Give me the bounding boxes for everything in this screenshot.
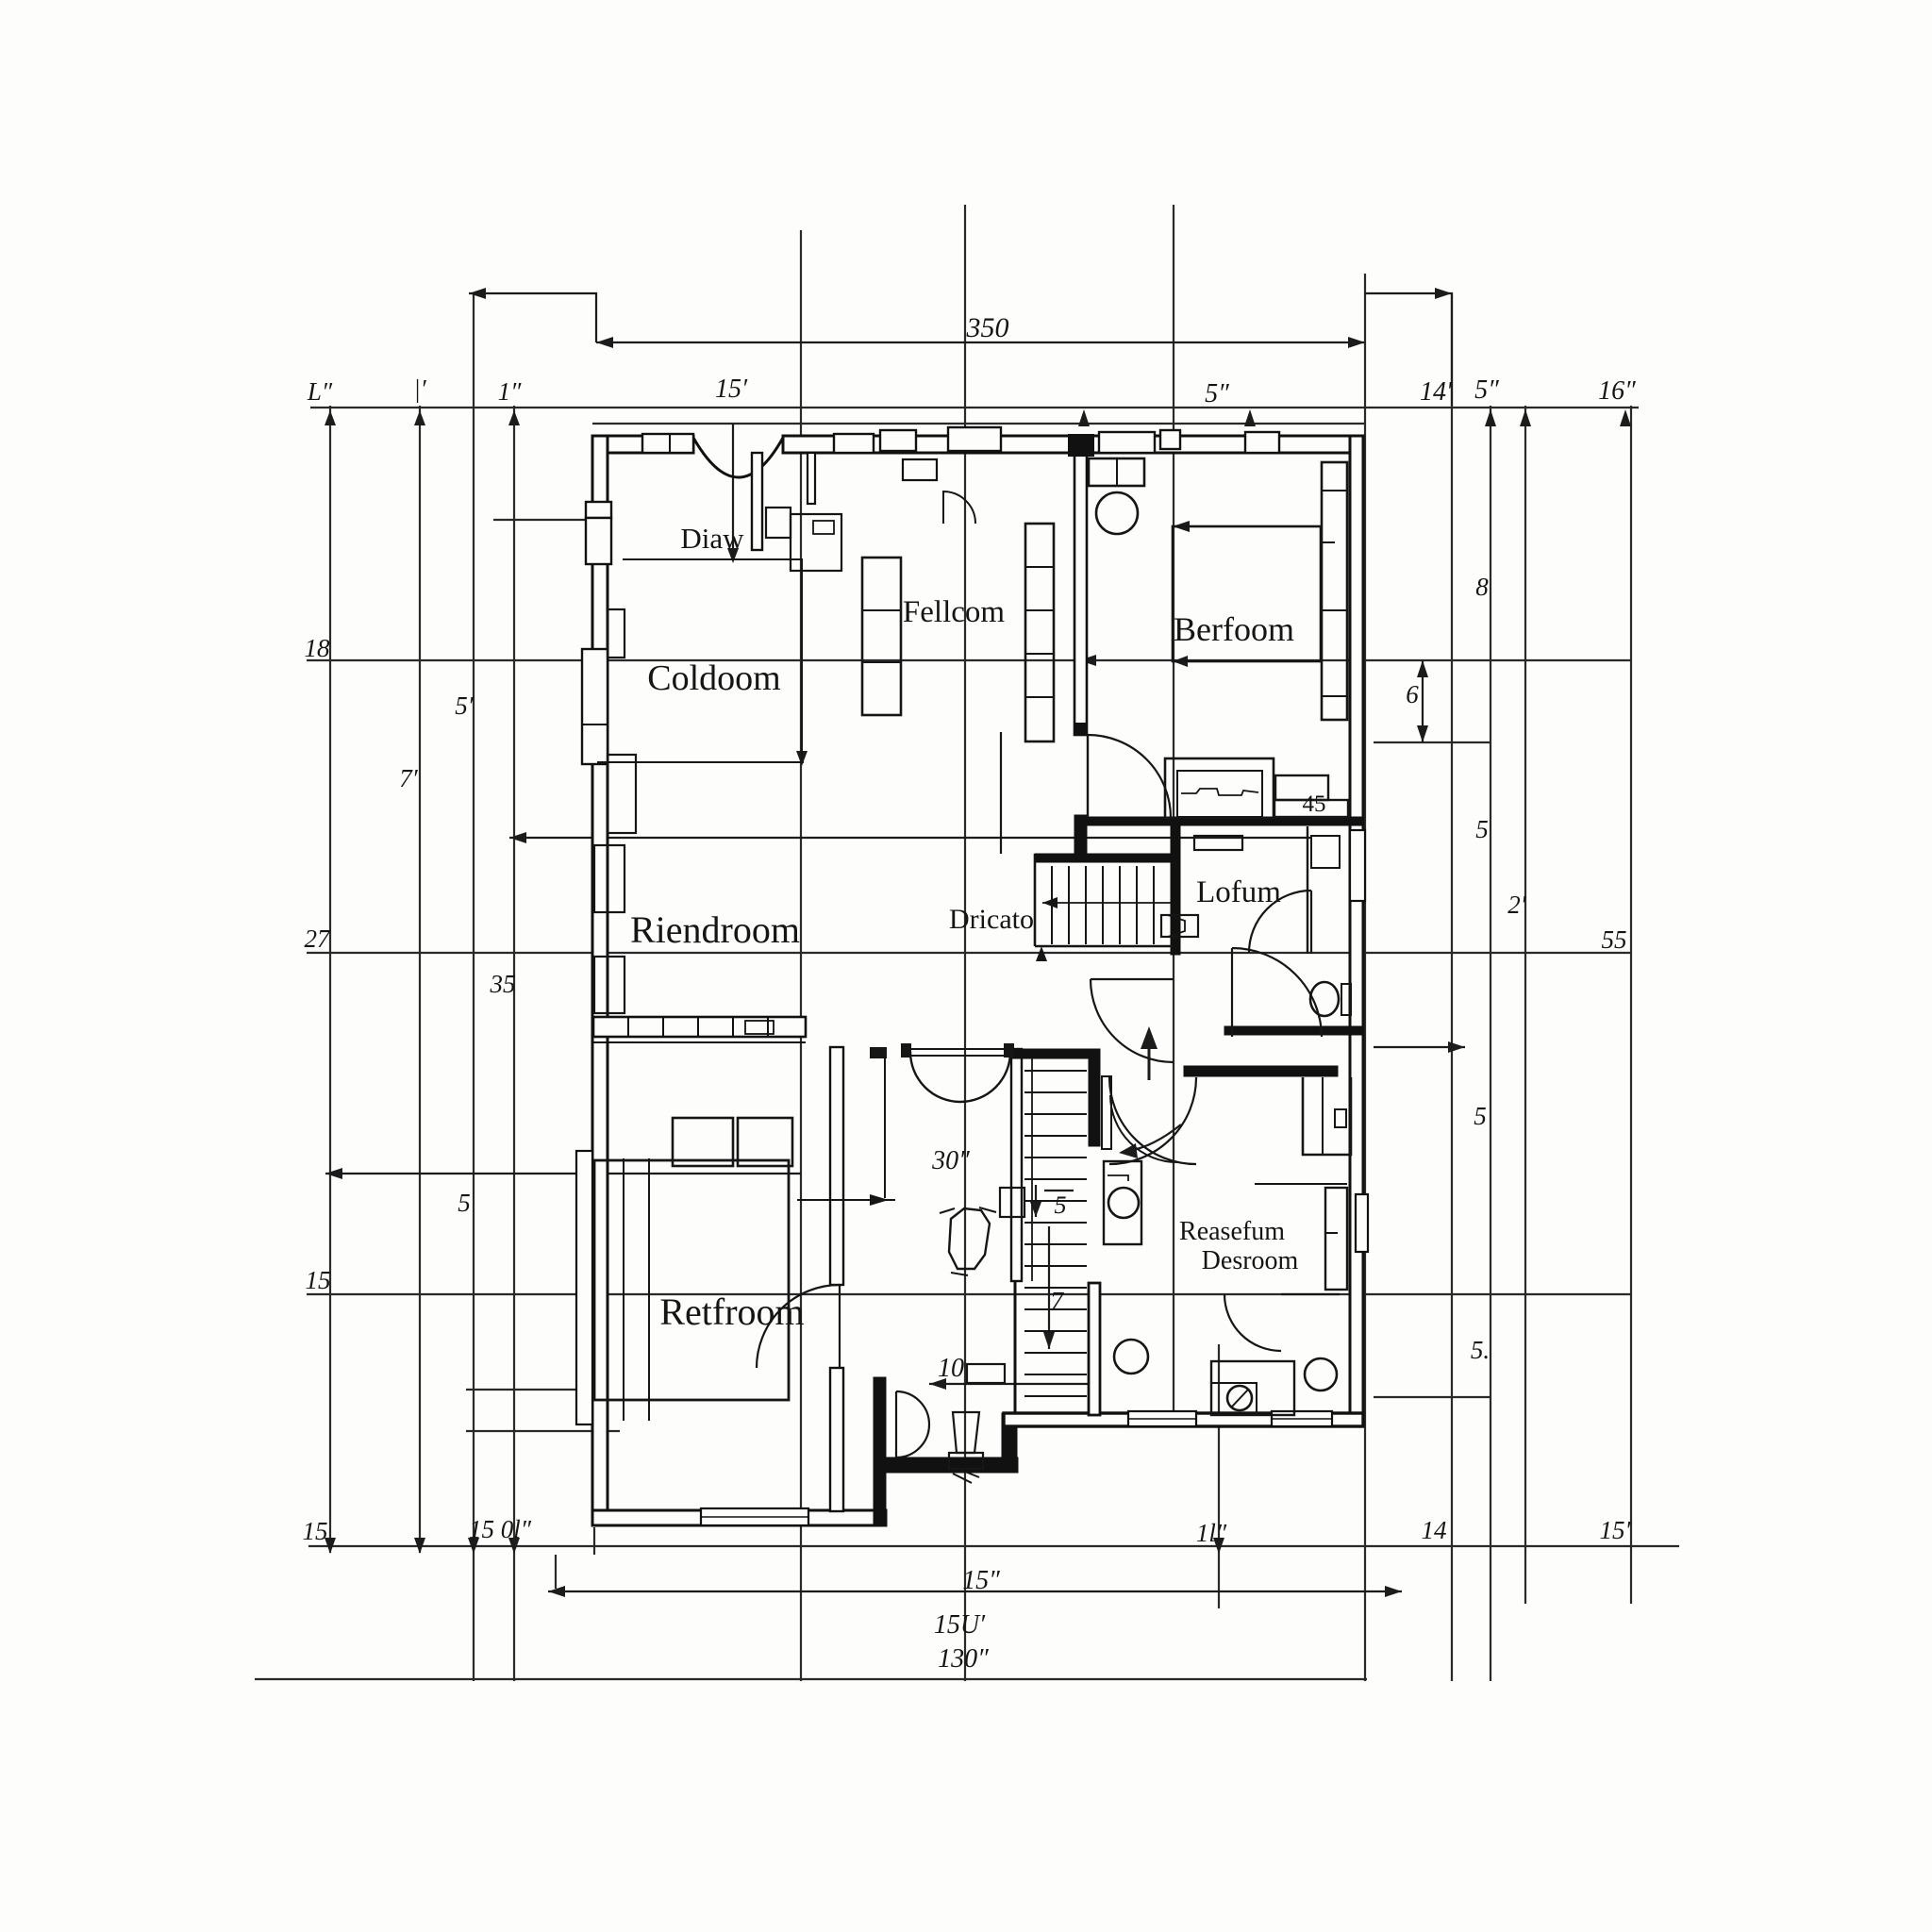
- svg-text:5″: 5″: [1205, 379, 1229, 408]
- svg-text:|′: |′: [413, 375, 426, 403]
- svg-text:Riendroom: Riendroom: [630, 908, 800, 951]
- svg-text:5: 5: [1055, 1191, 1067, 1219]
- svg-text:Reasefum: Reasefum: [1179, 1217, 1285, 1246]
- svg-text:1l″: 1l″: [1196, 1519, 1227, 1547]
- svg-text:Desroom: Desroom: [1202, 1246, 1299, 1275]
- svg-text:15′: 15′: [715, 375, 748, 404]
- svg-text:1″: 1″: [498, 377, 523, 406]
- svg-text:5″: 5″: [1474, 375, 1499, 405]
- svg-text:15: 15: [306, 1266, 331, 1294]
- svg-text:35: 35: [490, 970, 516, 998]
- svg-text:5: 5: [1474, 1102, 1487, 1130]
- svg-text:30″: 30″: [931, 1146, 970, 1175]
- svg-text:Retfroom: Retfroom: [659, 1291, 804, 1333]
- svg-text:45: 45: [1303, 791, 1326, 817]
- svg-text:2′: 2′: [1507, 891, 1527, 919]
- svg-text:15U′: 15U′: [934, 1610, 986, 1640]
- svg-text:Diaw: Diaw: [680, 522, 744, 555]
- svg-text:14: 14: [1422, 1516, 1447, 1544]
- svg-text:6: 6: [1406, 680, 1419, 708]
- svg-text:Berfoom: Berfoom: [1174, 610, 1294, 648]
- svg-text:10: 10: [938, 1354, 964, 1383]
- svg-text:5′: 5′: [455, 691, 475, 720]
- svg-text:55: 55: [1602, 925, 1627, 954]
- svg-text:7′: 7′: [399, 764, 419, 792]
- svg-text:5: 5: [1475, 815, 1489, 843]
- svg-text:130″: 130″: [938, 1644, 989, 1674]
- svg-text:Coldoom: Coldoom: [647, 658, 780, 698]
- svg-text:18: 18: [305, 634, 331, 662]
- svg-text:15: 15: [303, 1517, 328, 1545]
- svg-text:14′: 14′: [1420, 377, 1453, 407]
- svg-text:16″: 16″: [1598, 376, 1636, 406]
- svg-text:5: 5: [458, 1189, 471, 1217]
- svg-text:15″: 15″: [962, 1566, 1000, 1595]
- svg-text:15 0l″: 15 0l″: [469, 1515, 532, 1543]
- svg-text:27: 27: [305, 924, 332, 953]
- svg-text:350: 350: [966, 312, 1009, 343]
- svg-text:Fellcom: Fellcom: [903, 595, 1005, 629]
- svg-text:7: 7: [1050, 1288, 1064, 1317]
- svg-text:8: 8: [1475, 573, 1489, 601]
- svg-text:L″: L″: [307, 377, 333, 406]
- svg-text:Dricato: Dricato: [949, 904, 1034, 935]
- svg-text:Lofum: Lofum: [1196, 875, 1281, 909]
- svg-text:5.: 5.: [1471, 1336, 1490, 1364]
- svg-text:15′: 15′: [1600, 1516, 1632, 1544]
